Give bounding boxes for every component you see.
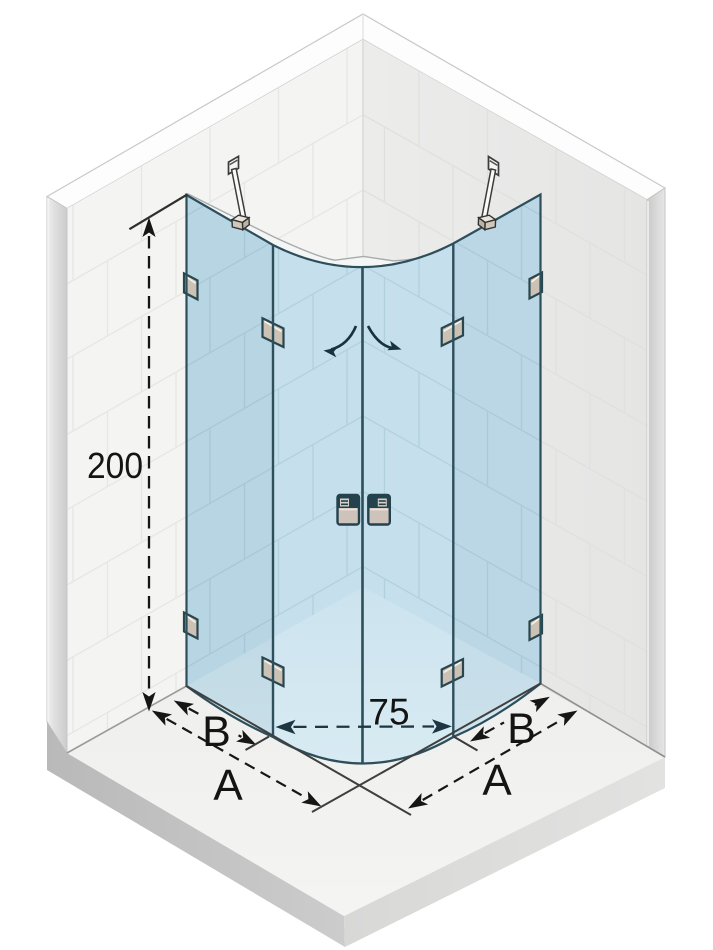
svg-text:A: A: [482, 756, 512, 805]
svg-text:A: A: [213, 761, 243, 810]
svg-text:75: 75: [368, 692, 409, 733]
svg-text:B: B: [507, 705, 536, 753]
svg-text:B: B: [202, 708, 231, 756]
svg-text:200: 200: [87, 445, 143, 486]
